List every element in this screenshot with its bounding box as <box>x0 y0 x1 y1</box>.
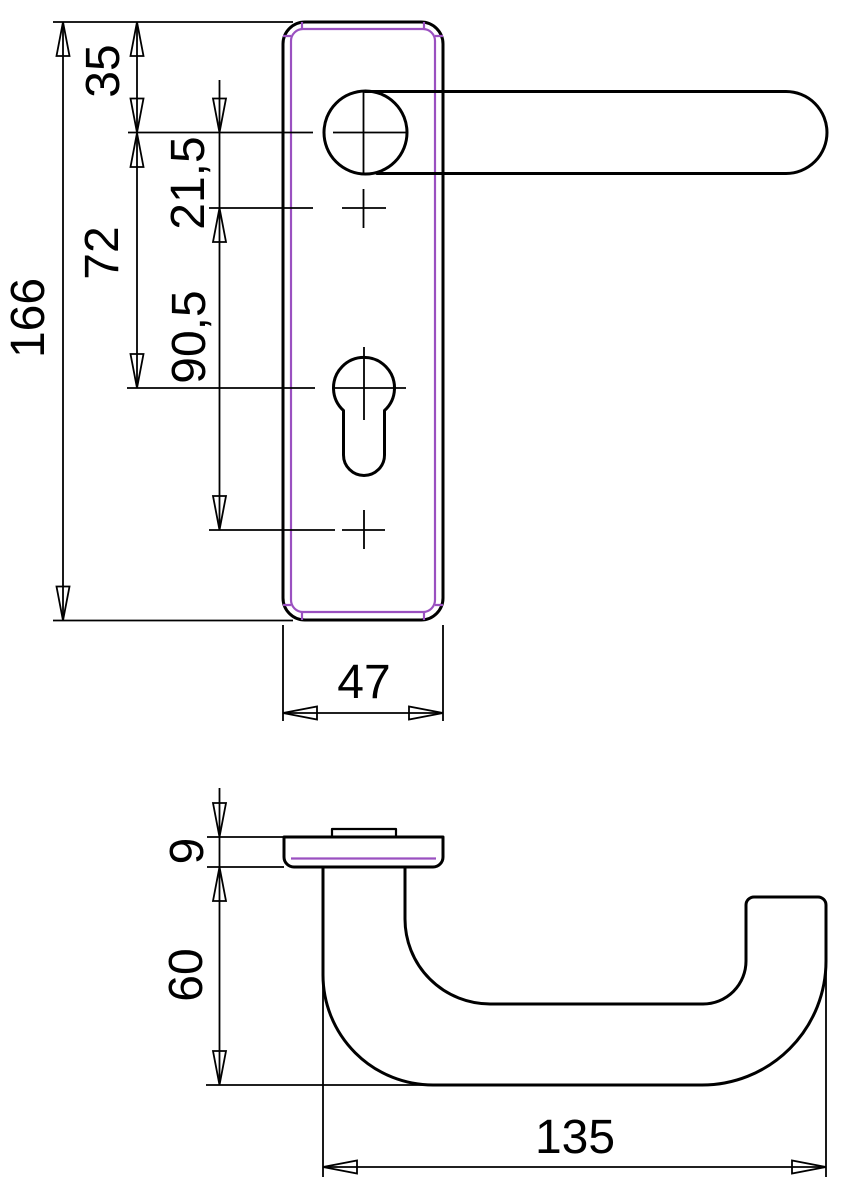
technical-drawing-canvas: 166 35 72 21,5 90,5 47 <box>0 0 859 1200</box>
dim-label-handle-to-upper-screw: 21,5 <box>162 136 215 229</box>
side-view: 9 60 135 <box>160 788 826 1177</box>
backplate-profile <box>284 837 443 867</box>
front-dimension-arrows <box>57 22 444 720</box>
dim-label-plate-thickness: 9 <box>161 838 214 865</box>
lever-profile-outline <box>323 867 826 1085</box>
front-extension-lines <box>53 22 443 721</box>
dim-label-handle-length: 135 <box>535 1111 615 1164</box>
dim-label-screw-spacing: 90,5 <box>163 290 216 383</box>
dim-label-handle-to-cylinder: 72 <box>76 226 129 279</box>
door-handle-technical-drawing: 166 35 72 21,5 90,5 47 <box>0 0 859 1200</box>
lower-screw-center-mark <box>342 510 385 549</box>
dim-label-plate-width: 47 <box>337 656 390 709</box>
front-view: 166 35 72 21,5 90,5 47 <box>2 22 827 721</box>
side-extension-lines <box>206 837 826 1177</box>
side-dimension-lines <box>220 788 827 1167</box>
upper-screw-center-mark <box>342 189 386 228</box>
dim-label-overall-height: 166 <box>2 278 55 358</box>
dim-label-handle-projection: 60 <box>160 948 213 1001</box>
dim-label-top-to-handle: 35 <box>77 44 130 97</box>
center-marks <box>333 90 406 549</box>
